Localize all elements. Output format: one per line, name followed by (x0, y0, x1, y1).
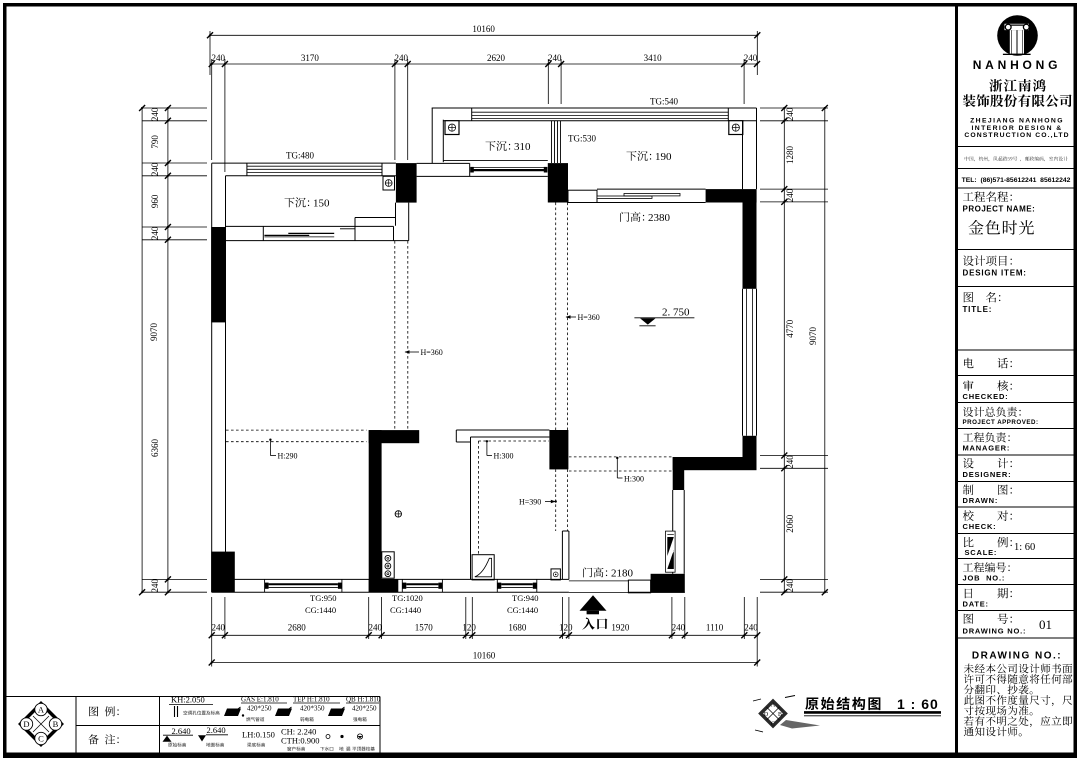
svg-text:2680: 2680 (288, 623, 307, 633)
svg-text:2.640: 2.640 (172, 726, 191, 736)
svg-text:C: C (38, 734, 44, 744)
svg-text:240: 240 (744, 623, 758, 633)
svg-text:1570: 1570 (415, 623, 434, 633)
svg-text:H=390: H=390 (519, 498, 541, 507)
svg-text:240: 240 (150, 107, 160, 121)
svg-text:1: 60: 1: 60 (1014, 542, 1035, 553)
svg-text:C: C (771, 722, 775, 728)
svg-text:420*250: 420*250 (352, 705, 377, 713)
svg-text:H:300: H:300 (624, 475, 644, 484)
svg-text:TEL: (86)571-85612241 856122: TEL: (86)571-85612241 85612242 (962, 177, 1071, 184)
svg-text:10160: 10160 (472, 24, 495, 34)
svg-text:TG:950: TG:950 (310, 593, 336, 603)
svg-text:4770: 4770 (785, 319, 795, 338)
svg-text:QB H:1.810: QB H:1.810 (346, 696, 381, 704)
svg-text:240: 240 (150, 579, 160, 593)
svg-text:TG:540: TG:540 (650, 97, 678, 107)
svg-text:DRAWING NO.:: DRAWING NO.: (963, 627, 1027, 636)
svg-text:240: 240 (785, 579, 795, 593)
svg-text:ZHEJIANG NANHONG: ZHEJIANG NANHONG (970, 118, 1064, 125)
svg-text:TG:480: TG:480 (286, 151, 314, 161)
svg-text:240: 240 (395, 53, 409, 63)
svg-text:190: 190 (655, 151, 672, 163)
svg-text:D: D (764, 712, 769, 718)
svg-text:CG:1440: CG:1440 (305, 605, 336, 615)
svg-text:150: 150 (313, 198, 330, 210)
svg-text:CHECKED:: CHECKED: (963, 392, 1009, 401)
svg-text:A: A (771, 703, 776, 709)
svg-text:CHECK:: CHECK: (963, 522, 997, 531)
svg-text:2620: 2620 (487, 53, 506, 63)
svg-text:01: 01 (1039, 617, 1052, 632)
svg-text:CONSTRUCTION CO.,LTD: CONSTRUCTION CO.,LTD (964, 132, 1069, 139)
svg-text:DESIGNER:: DESIGNER: (963, 470, 1012, 479)
svg-text:240: 240 (744, 53, 758, 63)
svg-text:A: A (38, 705, 45, 715)
svg-text:240: 240 (150, 226, 160, 240)
svg-text:240: 240 (785, 455, 795, 469)
svg-text:LH:0.150: LH:0.150 (242, 730, 275, 740)
svg-text:B: B (53, 719, 59, 729)
svg-text:1280: 1280 (785, 146, 795, 165)
svg-text:H:300: H:300 (494, 452, 514, 461)
svg-text:TG:940: TG:940 (512, 593, 538, 603)
svg-text:2. 750: 2. 750 (662, 307, 690, 319)
svg-text:790: 790 (150, 135, 160, 149)
svg-text:3170: 3170 (301, 53, 320, 63)
svg-text:MANAGER:: MANAGER: (963, 444, 1011, 453)
svg-text:420*250: 420*250 (247, 705, 272, 713)
svg-text:9070: 9070 (149, 323, 159, 342)
svg-text:TG:1020: TG:1020 (392, 593, 423, 603)
svg-text:PROJECT APPROVED:: PROJECT APPROVED: (963, 419, 1039, 426)
svg-text:JOB NO.:: JOB NO.: (963, 574, 1006, 583)
svg-text:960: 960 (150, 194, 160, 208)
svg-text:B: B (778, 712, 782, 718)
svg-text:H:290: H:290 (278, 452, 298, 461)
svg-text:10160: 10160 (473, 651, 496, 661)
svg-text:240: 240 (548, 53, 562, 63)
svg-text:310: 310 (514, 141, 531, 153)
svg-text:CG:1440: CG:1440 (390, 605, 421, 615)
svg-text:D: D (23, 719, 29, 729)
svg-text:H=360: H=360 (421, 348, 443, 357)
svg-text:KH:2.050: KH:2.050 (171, 695, 205, 705)
svg-text:240: 240 (212, 623, 226, 633)
svg-text:TEP H:1.810: TEP H:1.810 (293, 696, 330, 704)
svg-text:DRAWN:: DRAWN: (963, 496, 999, 505)
svg-text:TG:530: TG:530 (568, 134, 596, 144)
svg-text:120: 120 (559, 623, 573, 633)
svg-text:1680: 1680 (508, 623, 527, 633)
svg-text:240: 240 (785, 107, 795, 121)
svg-text:DATE:: DATE: (963, 600, 989, 609)
svg-text:3410: 3410 (644, 53, 663, 63)
svg-text:2060: 2060 (785, 514, 795, 533)
svg-text:1 : 60: 1 : 60 (897, 696, 939, 712)
svg-text:CTH:0.900: CTH:0.900 (281, 736, 320, 746)
svg-text:GAS E:1.810: GAS E:1.810 (241, 696, 279, 704)
svg-text:2.640: 2.640 (207, 725, 226, 735)
svg-text:NANHONG: NANHONG (973, 58, 1062, 72)
svg-text:240: 240 (785, 188, 795, 202)
svg-text:240: 240 (212, 53, 226, 63)
svg-text:H=360: H=360 (578, 313, 600, 322)
svg-text:2380: 2380 (648, 212, 671, 224)
svg-text:240: 240 (150, 162, 160, 176)
svg-text:240: 240 (672, 623, 686, 633)
svg-text:9070: 9070 (808, 327, 818, 346)
svg-text:420*350: 420*350 (300, 705, 325, 713)
svg-text:1920: 1920 (611, 623, 630, 633)
svg-text:6360: 6360 (150, 439, 160, 458)
svg-text:120: 120 (462, 623, 476, 633)
svg-text:TITLE:: TITLE: (963, 305, 993, 314)
svg-text:PROJECT NAME:: PROJECT NAME: (963, 205, 1036, 214)
svg-text:240: 240 (368, 623, 382, 633)
svg-text:SCALE:: SCALE: (965, 548, 998, 557)
svg-text:DRAWING NO.:: DRAWING NO.: (972, 651, 1062, 662)
svg-text:DESIGN ITEM:: DESIGN ITEM: (963, 269, 1027, 278)
svg-text:2180: 2180 (611, 568, 634, 580)
svg-text:CG:1440: CG:1440 (507, 605, 538, 615)
svg-text:1110: 1110 (706, 623, 724, 633)
svg-text:INTERIOR DESIGN &: INTERIOR DESIGN & (971, 125, 1062, 132)
